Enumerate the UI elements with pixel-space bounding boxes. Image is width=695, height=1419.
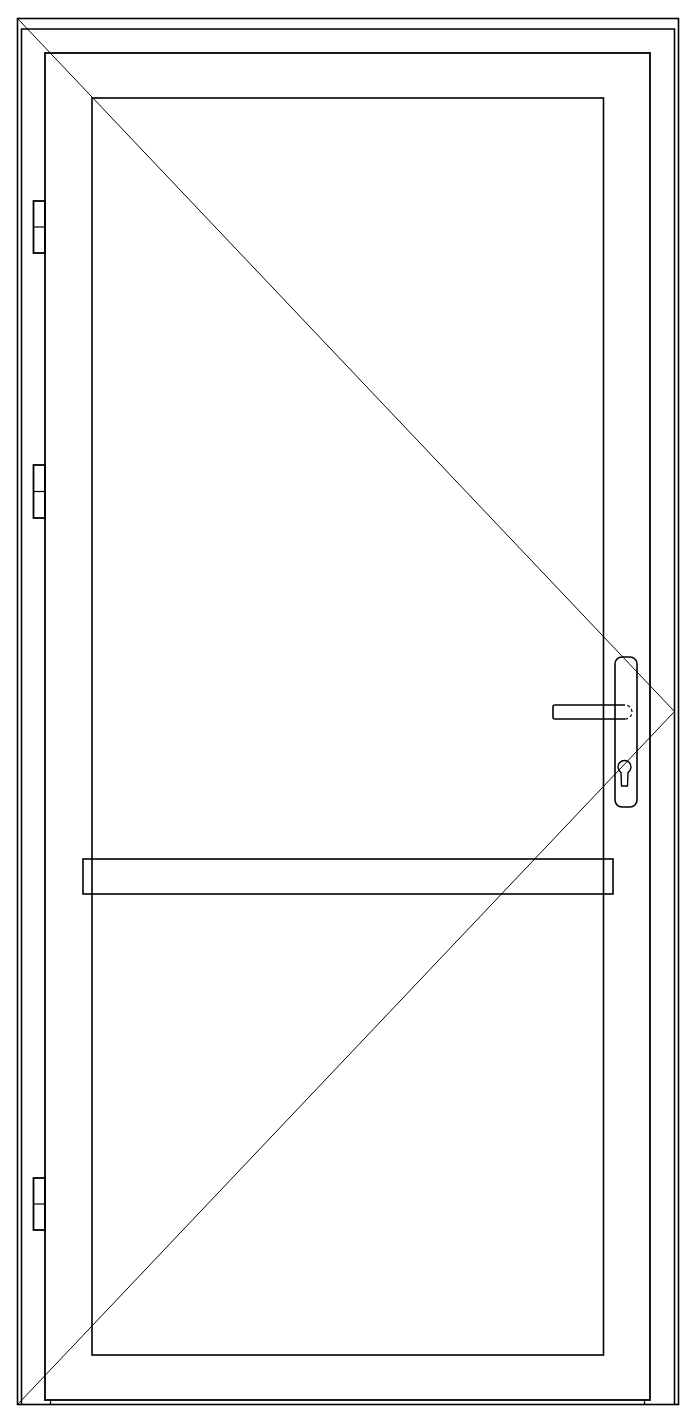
door-technical-drawing xyxy=(0,0,695,1419)
opening-outer-outline xyxy=(18,19,679,1405)
door-leaf-outline xyxy=(45,53,650,1400)
handle-lever-hidden-endcap xyxy=(625,705,632,719)
frame-outline xyxy=(22,29,675,1405)
glass-panel-outline xyxy=(92,98,604,1355)
door-drawing-canvas xyxy=(0,0,695,1419)
push-bar-outline xyxy=(83,859,613,894)
swing-indicator-lower-line xyxy=(18,712,675,1405)
swing-indicator-upper-line xyxy=(18,19,675,712)
handle-backplate-outline xyxy=(615,657,637,807)
